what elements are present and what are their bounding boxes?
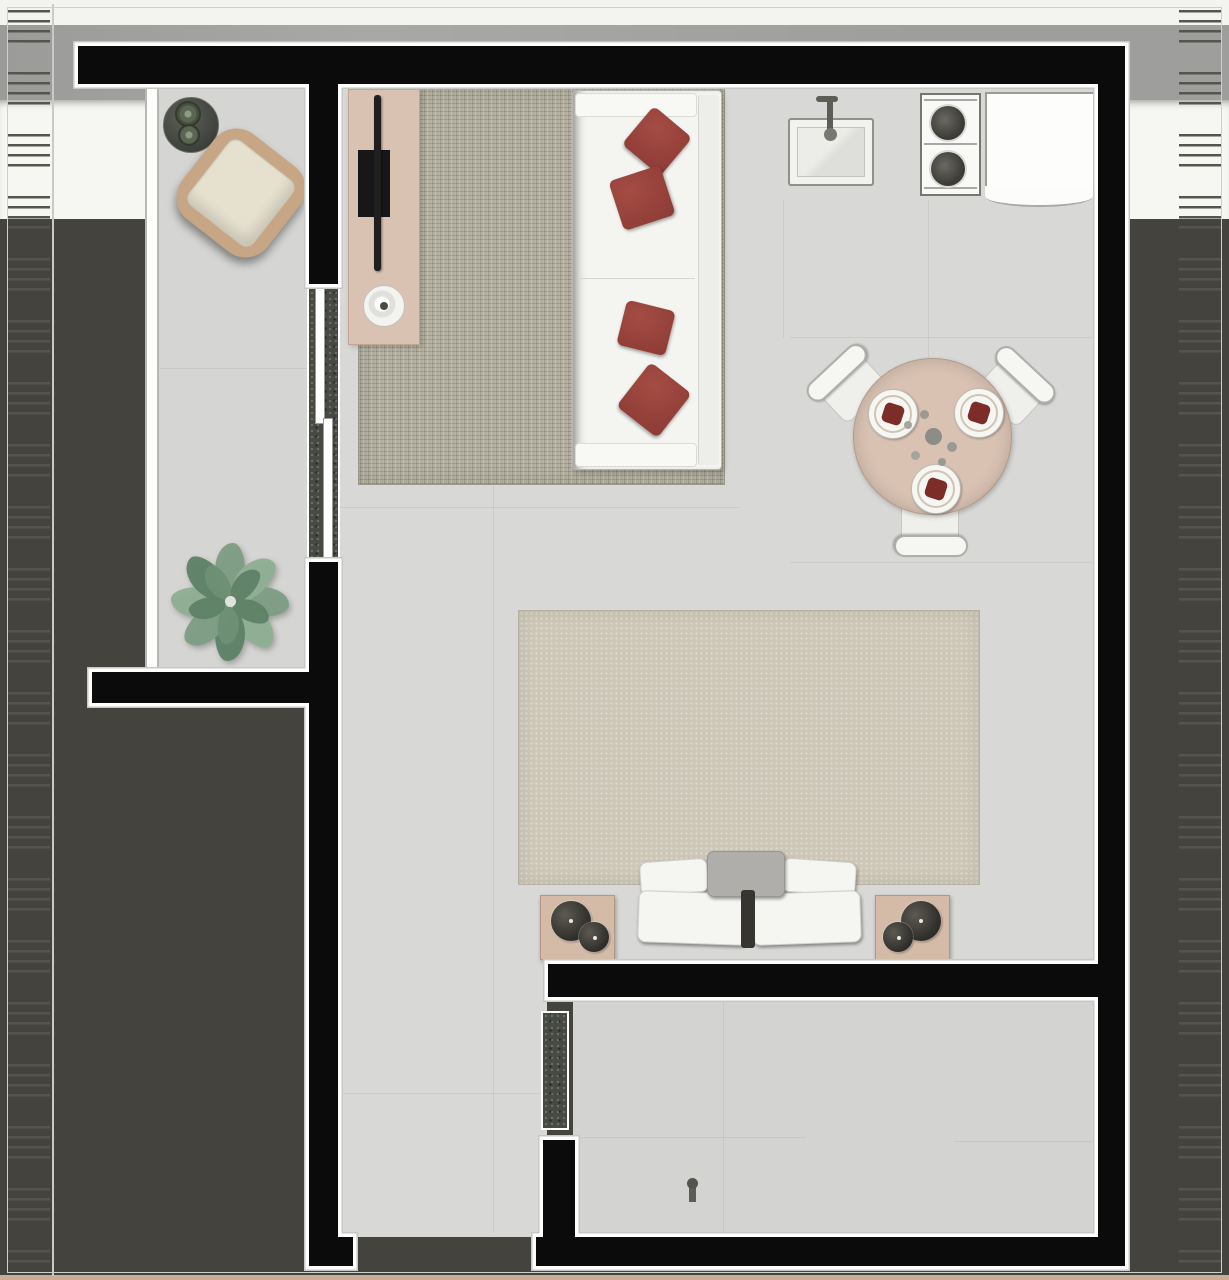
bed-pillow [751,890,862,946]
floor-gridline [723,997,724,1237]
nightstand-left [540,895,615,960]
floor-gridline [493,486,494,1233]
floor-gridline [790,562,1098,563]
floor-gridline [928,200,929,358]
sofa-backrest [698,95,719,465]
burner-icon [931,152,965,186]
chair-cushion [183,135,298,250]
balcony-railing [145,84,159,677]
balcony-door-panel [315,288,325,424]
bed-runner [741,890,755,948]
centerpiece-dot [920,410,929,419]
burner-icon [931,106,965,140]
balcony-door-panel [323,418,333,561]
bathroom-sink [0,851,87,928]
cooktop [920,93,981,196]
place-setting [868,389,918,439]
floor-gridline [783,200,784,338]
floor-gridline [575,1137,805,1138]
fridge-door-arc [985,186,1093,207]
bathroom-sliding-door [543,1013,567,1128]
place-setting [911,464,961,514]
bed-pillow [637,890,749,946]
floor-gridline [338,1093,545,1094]
plant-center [225,596,236,607]
kitchen-faucet-icon [824,128,837,141]
floor-gridline [790,337,1098,338]
potted-plant [172,543,289,660]
centerpiece-dot [925,428,942,445]
nightstand-right [875,895,950,960]
bed-headboard [0,1275,1229,1280]
sofa-armrest-bottom [575,443,697,467]
floor-gridline [954,1141,1098,1142]
bathroom-faucet-icon [687,1178,698,1189]
floor-gridline [155,368,309,369]
place-setting [954,388,1004,438]
centerpiece-dot [947,442,957,452]
centerpiece-dot [904,421,912,429]
floor-plan [0,0,1229,1280]
bed-rug [518,610,980,885]
refrigerator [985,92,1097,192]
lounge-chair [183,135,299,251]
round-speaker-icon [363,285,405,327]
decor-disc-icon [883,922,913,952]
sofa-cushion-split [578,278,695,279]
sofa-armrest-top [575,93,697,117]
decor-disc-icon [579,922,609,952]
kitchen-faucet-icon [827,101,833,131]
dining-table [853,358,1012,515]
centerpiece-dot [911,451,920,460]
bathroom-floor [573,997,1098,1237]
floor-gridline [338,507,740,508]
centerpiece-dot [938,458,946,466]
tv-screen [374,95,381,271]
corridor-floor [334,960,547,1237]
